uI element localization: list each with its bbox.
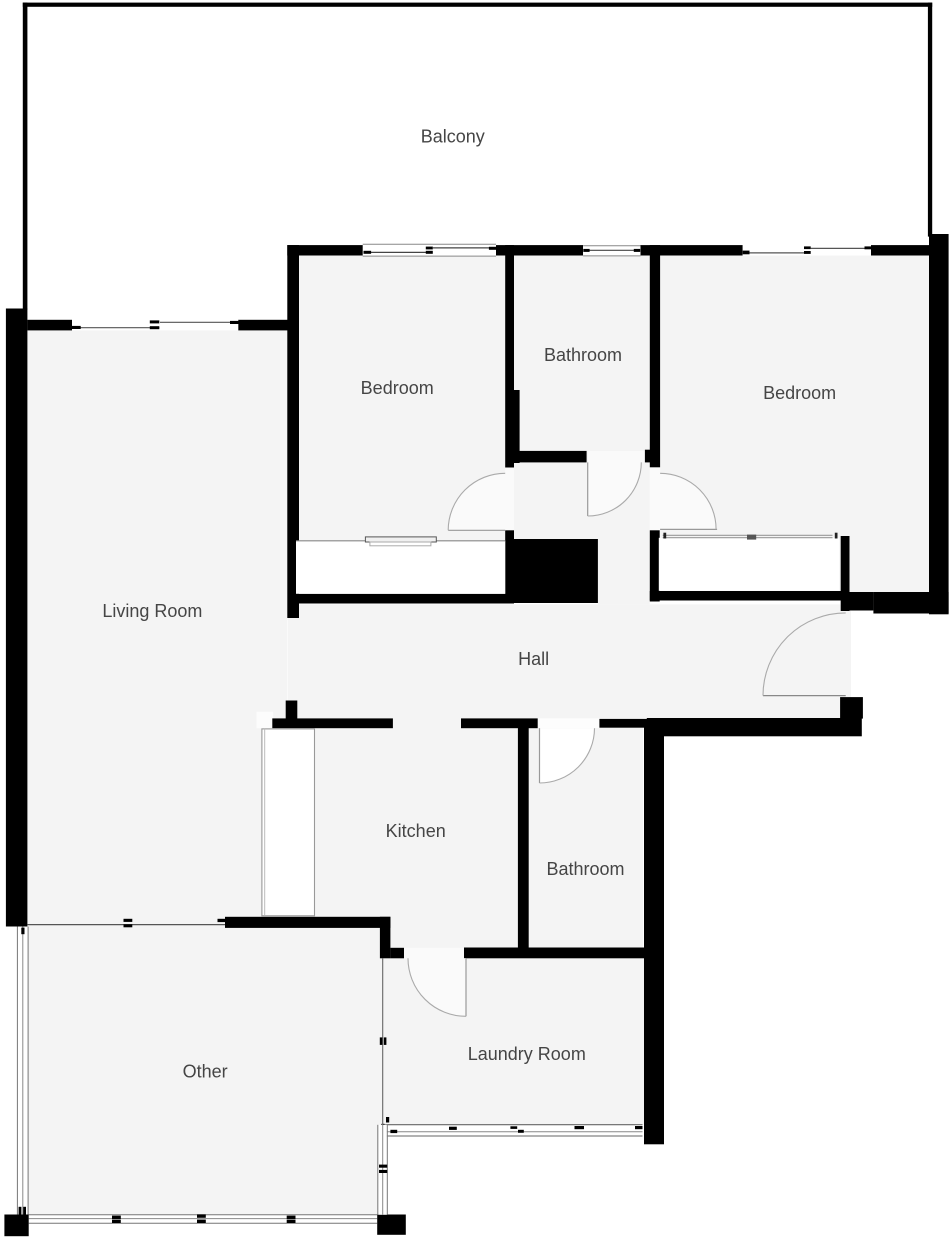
svg-text:Bedroom: Bedroom — [763, 383, 836, 403]
svg-text:Balcony: Balcony — [421, 127, 485, 147]
svg-text:Bathroom: Bathroom — [546, 859, 624, 879]
svg-text:Other: Other — [183, 1061, 228, 1081]
svg-text:Living Room: Living Room — [102, 601, 202, 621]
svg-text:Kitchen: Kitchen — [386, 821, 446, 841]
svg-text:Laundry Room: Laundry Room — [468, 1044, 586, 1064]
svg-text:Hall: Hall — [518, 649, 549, 669]
svg-text:Bedroom: Bedroom — [361, 378, 434, 398]
svg-text:Bathroom: Bathroom — [544, 345, 622, 365]
